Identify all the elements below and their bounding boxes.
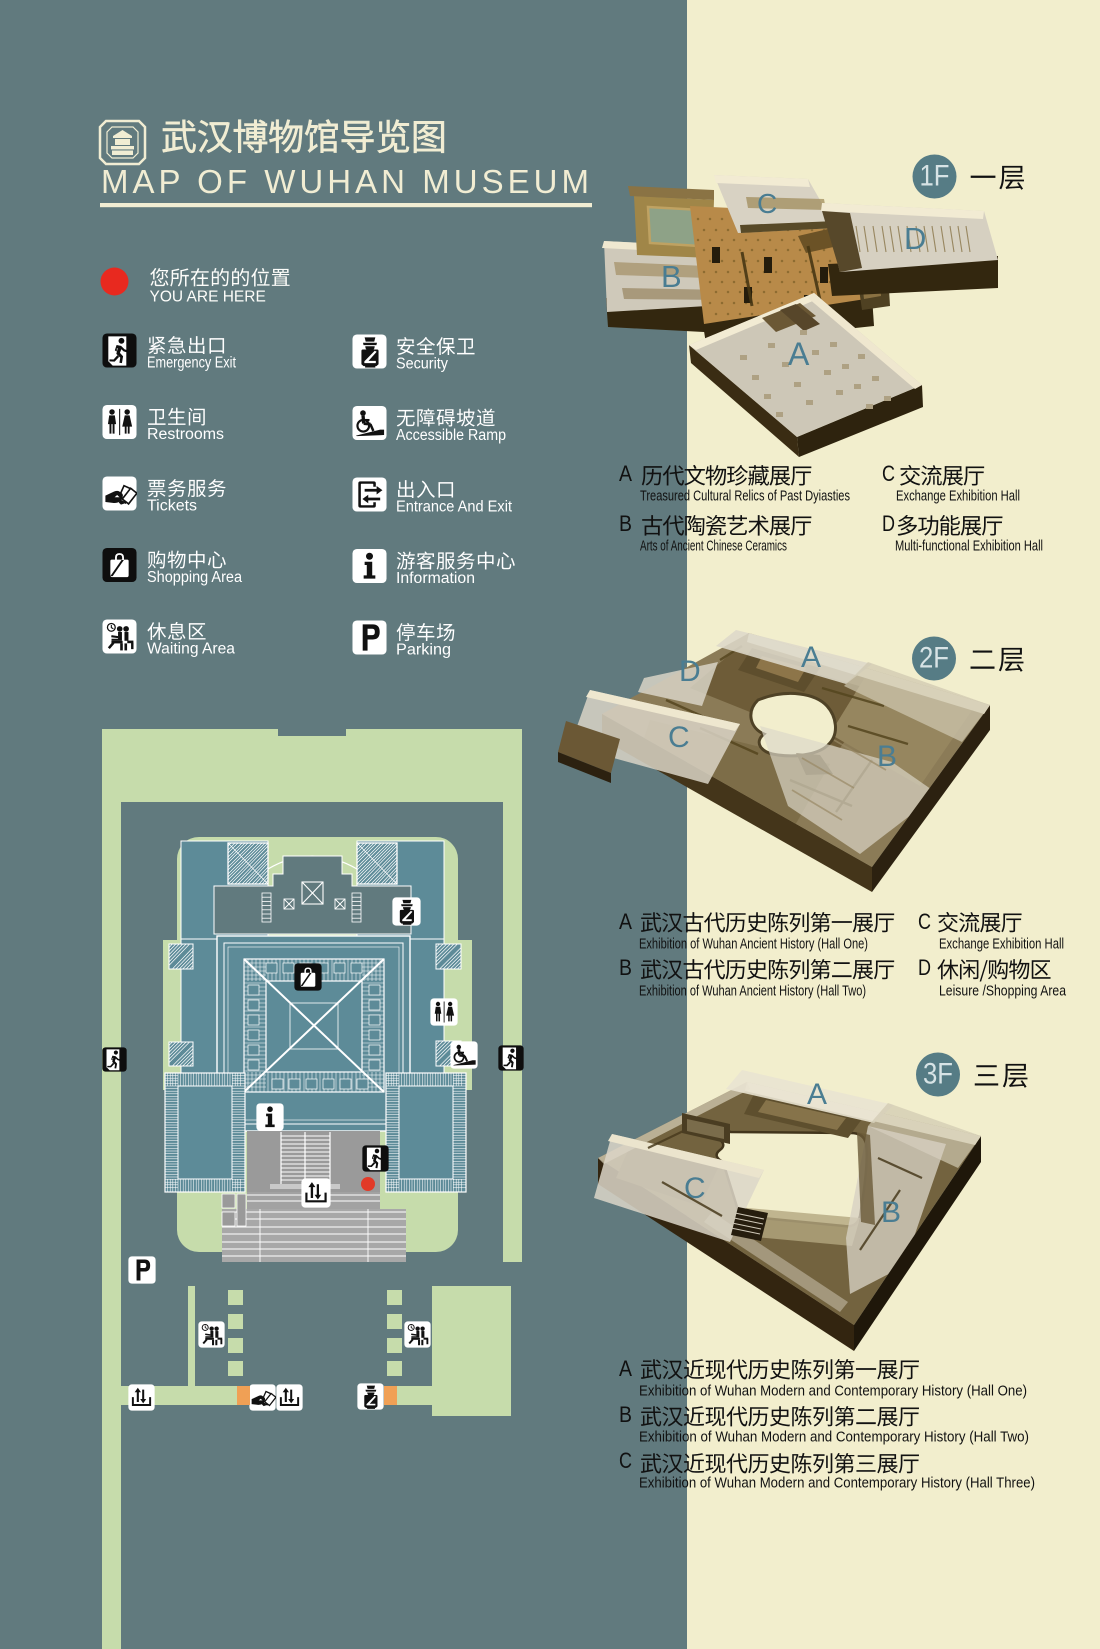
svg-text:Exchange Exhibition Hall: Exchange Exhibition Hall [939,936,1064,952]
svg-text:Treasured Cultural Relics of P: Treasured Cultural Relics of Past Dyiast… [640,488,850,504]
svg-text:C: C [668,721,690,754]
svg-text:YOU ARE HERE: YOU ARE HERE [150,289,266,306]
svg-text:MAP OF WUHAN MUSEUM: MAP OF WUHAN MUSEUM [101,163,589,200]
svg-text:Emergency Exit: Emergency Exit [147,355,237,372]
svg-text:Security: Security [396,356,448,373]
svg-text:1F: 1F [920,160,950,193]
svg-text:D: D [882,511,895,536]
svg-text:B: B [661,259,682,294]
svg-text:2F: 2F [919,642,949,675]
svg-text:Accessible Ramp: Accessible Ramp [396,427,506,444]
svg-text:C: C [918,909,931,934]
svg-text:D: D [918,955,931,980]
svg-text:3F: 3F [923,1058,953,1091]
svg-text:Exhibition of Wuhan Modern and: Exhibition of Wuhan Modern and Contempor… [639,1383,1027,1399]
svg-text:B: B [881,1196,901,1229]
svg-text:Arts of Ancient Chinese Cerami: Arts of Ancient Chinese Ceramics [640,538,787,554]
svg-text:Exhibition of Wuhan Ancient Hi: Exhibition of Wuhan Ancient History (Hal… [639,983,866,999]
svg-text:B: B [877,740,897,773]
svg-text:A: A [619,461,632,486]
svg-text:C: C [757,188,777,219]
svg-text:Parking: Parking [396,642,451,659]
svg-text:A: A [801,641,821,674]
svg-text:Entrance And Exit: Entrance And Exit [396,499,513,516]
svg-text:C: C [619,1448,632,1473]
svg-text:Tickets: Tickets [147,498,197,515]
svg-text:D: D [904,221,926,256]
svg-text:A: A [807,1078,827,1111]
svg-text:A: A [619,1356,632,1381]
svg-text:Waiting Area: Waiting Area [147,641,235,658]
svg-text:Restrooms: Restrooms [147,426,224,443]
svg-text:Exhibition of Wuhan Modern and: Exhibition of Wuhan Modern and Contempor… [639,1475,1035,1491]
svg-text:Multi-functional Exhibition Ha: Multi-functional Exhibition Hall [895,538,1043,554]
svg-text:Shopping Area: Shopping Area [147,569,242,586]
svg-text:Leisure /Shopping Area: Leisure /Shopping Area [939,983,1067,999]
svg-text:Exhibition of Wuhan Modern and: Exhibition of Wuhan Modern and Contempor… [639,1429,1029,1445]
svg-text:Information: Information [396,570,475,587]
svg-text:C: C [882,461,895,486]
svg-text:Exchange Exhibition Hall: Exchange Exhibition Hall [896,488,1020,504]
svg-text:A: A [788,336,810,372]
svg-text:C: C [684,1172,706,1205]
svg-text:B: B [619,511,632,536]
svg-text:B: B [619,1402,632,1427]
svg-text:A: A [619,909,632,934]
svg-text:Exhibition of Wuhan Ancient Hi: Exhibition of Wuhan Ancient History (Hal… [639,936,868,952]
svg-text:D: D [679,655,701,688]
svg-text:B: B [619,955,632,980]
